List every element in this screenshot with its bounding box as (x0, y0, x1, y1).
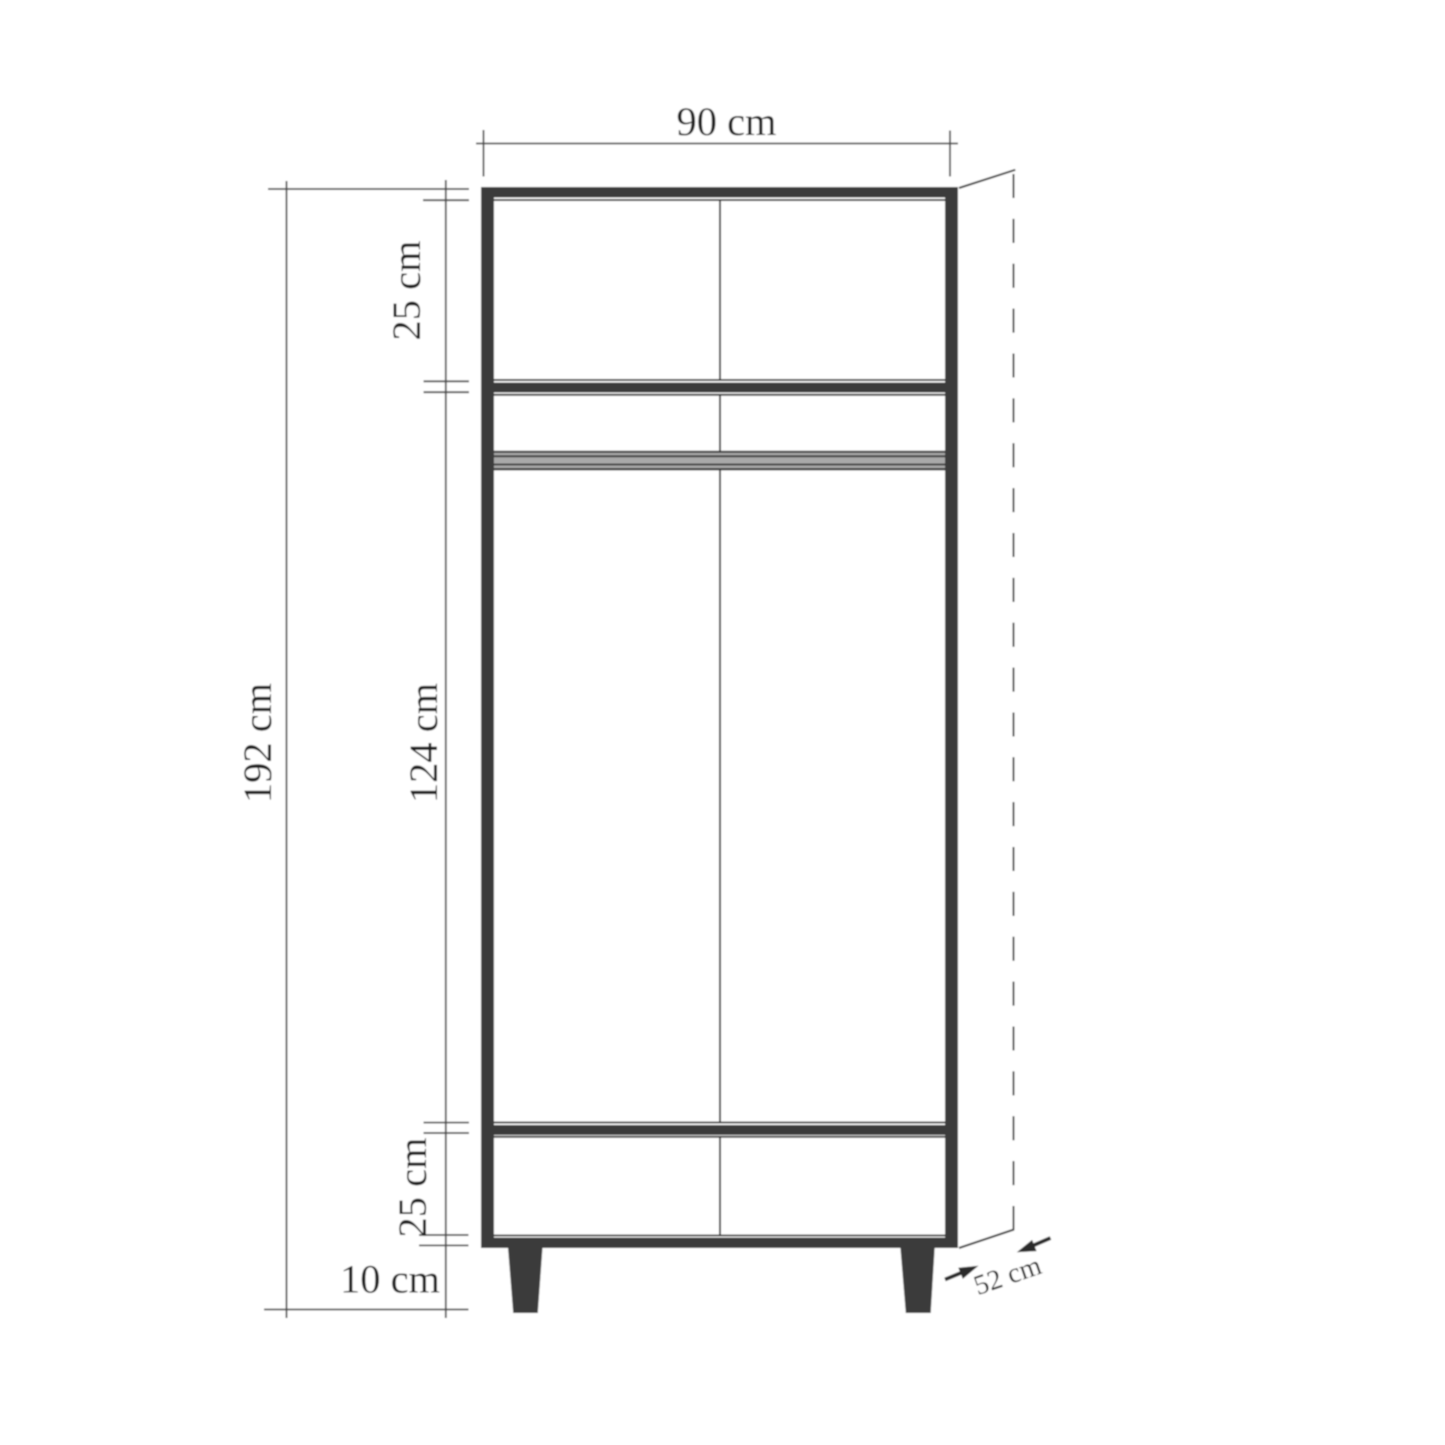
svg-text:124 cm: 124 cm (401, 683, 446, 803)
svg-text:10 cm: 10 cm (340, 1257, 440, 1302)
svg-text:25 cm: 25 cm (384, 240, 429, 340)
svg-text:90 cm: 90 cm (676, 99, 776, 144)
svg-text:192 cm: 192 cm (235, 683, 280, 803)
svg-text:25 cm: 25 cm (390, 1137, 435, 1237)
